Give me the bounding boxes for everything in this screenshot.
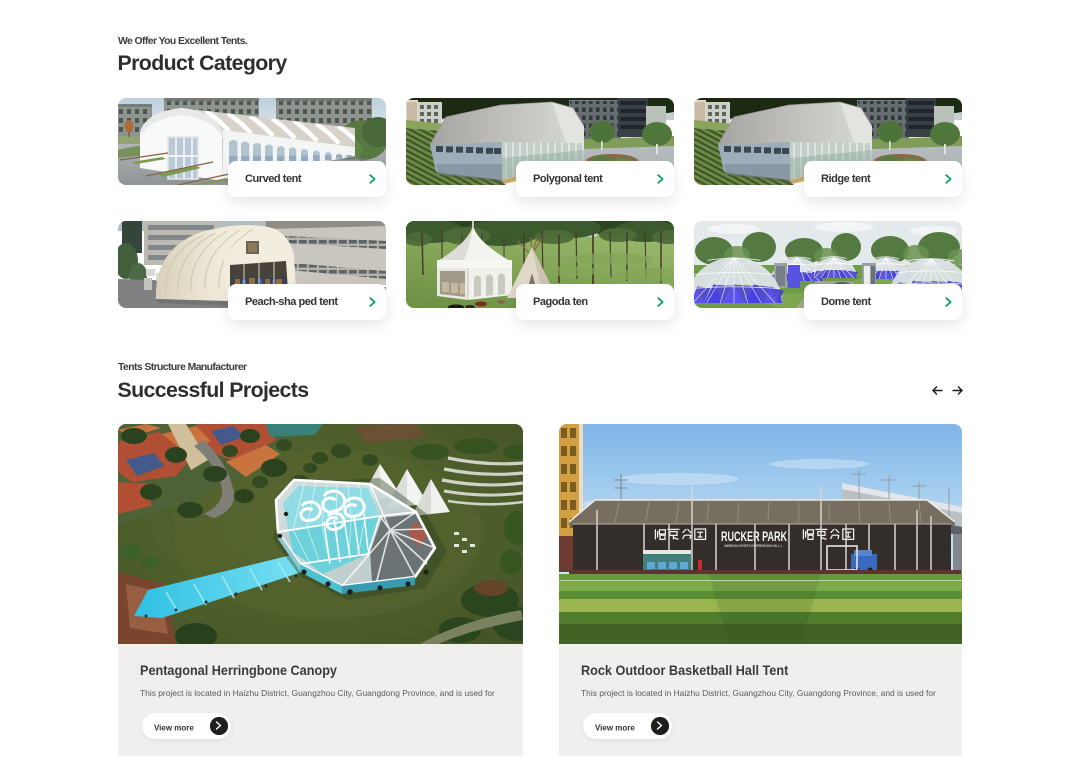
svg-text:RUCKER PARK: RUCKER PARK	[721, 529, 787, 544]
svg-text:AMERICAN SPORTS EXPERIENCING H: AMERICAN SPORTS EXPERIENCING HALL ●	[724, 544, 782, 548]
